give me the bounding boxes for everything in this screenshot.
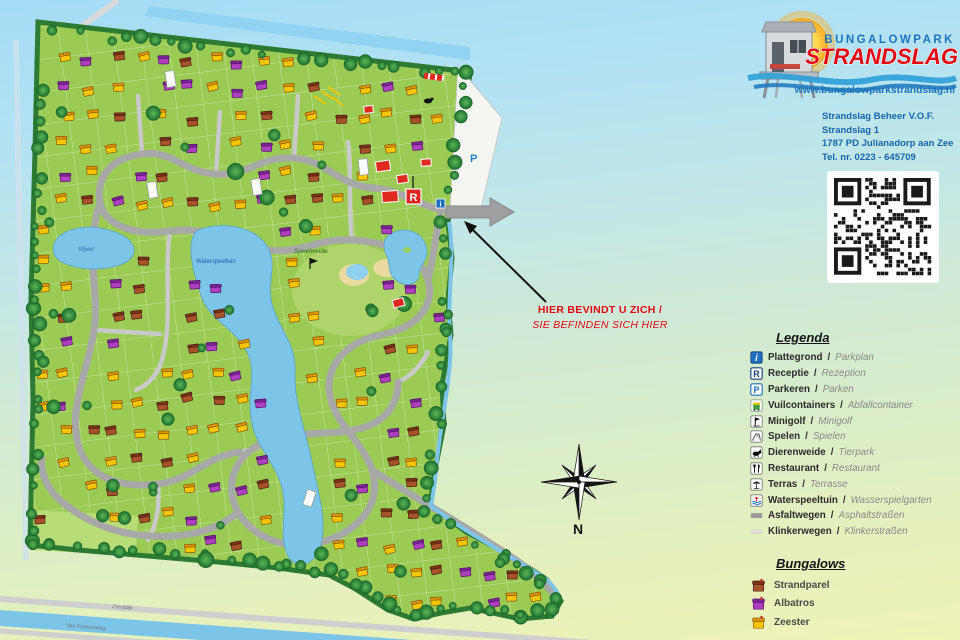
left-canal xyxy=(16,40,26,560)
bungalow-icon xyxy=(261,143,272,151)
svg-text:R: R xyxy=(410,192,418,204)
tree-icon xyxy=(432,514,442,524)
bungalow-icon xyxy=(56,136,67,144)
tree-icon xyxy=(500,605,509,614)
tree-icon xyxy=(297,52,310,65)
bungalow-icon xyxy=(232,89,243,97)
tree-icon xyxy=(133,29,148,44)
bungalow-icon xyxy=(213,309,225,319)
tree-icon xyxy=(198,551,214,567)
tree-icon xyxy=(178,39,193,54)
bungalow-icon xyxy=(111,401,122,409)
tree-icon xyxy=(344,58,357,71)
bungalow-icon xyxy=(460,567,472,576)
bungalow-icon xyxy=(87,109,99,118)
bungalow-icon xyxy=(336,399,347,408)
legend-item-parking: P Parkeren / Parken xyxy=(750,382,960,398)
tree-icon xyxy=(324,562,338,576)
tree-icon xyxy=(225,305,234,314)
tree-icon xyxy=(31,252,38,259)
you-are-here-nl: HIER BEVINDT U ZICH / xyxy=(500,304,700,316)
tree-icon xyxy=(444,186,452,194)
bungalow-icon xyxy=(58,81,69,89)
bungalow-icon xyxy=(430,565,443,575)
bungalow-icon xyxy=(306,373,318,383)
bungalow-icon xyxy=(60,173,71,181)
tree-icon xyxy=(435,344,447,356)
legend-items: i Plattegrond / Parkplan R Receptie / Re… xyxy=(750,350,960,540)
bungalow-albatros-icon xyxy=(750,595,767,612)
tree-icon xyxy=(519,566,533,580)
tree-icon xyxy=(106,479,119,492)
you-are-here-de: SIE BEFINDEN SICH HIER xyxy=(500,319,700,331)
tree-icon xyxy=(448,155,463,170)
tree-icon xyxy=(38,206,47,215)
tree-icon xyxy=(295,560,306,571)
tree-icon xyxy=(393,606,401,614)
bungalow-icon xyxy=(529,592,541,602)
tree-icon xyxy=(33,449,44,460)
tree-icon xyxy=(121,32,131,42)
legend: Legenda i Plattegrond / Parkplan R Recep… xyxy=(750,330,960,540)
bungalow-icon xyxy=(38,255,49,263)
tree-icon xyxy=(299,219,313,233)
bungalow-icon xyxy=(80,57,92,66)
tree-icon xyxy=(534,579,544,589)
bungalow-icon xyxy=(356,537,368,547)
bungalow-icon xyxy=(236,393,249,403)
bungalow-icon xyxy=(410,115,422,124)
legend-item-info: i Plattegrond / Parkplan xyxy=(750,350,960,366)
tree-icon xyxy=(174,378,187,391)
tree-icon xyxy=(29,419,38,428)
you-are-here-text: HIER BEVINDT U ZICH / SIE BEFINDEN SICH … xyxy=(500,304,700,331)
bungalow-icon xyxy=(131,453,143,463)
bungalow-icon xyxy=(430,597,442,606)
tree-icon xyxy=(30,482,37,489)
bungalow-type-albatros: Albatros xyxy=(750,595,950,614)
bungalow-icon xyxy=(136,200,149,210)
bungalow-icon xyxy=(387,456,400,466)
bungalow-icon xyxy=(107,339,119,349)
terrace-icon xyxy=(750,478,763,491)
bungalow-icon xyxy=(231,61,242,69)
bungalow-icon xyxy=(331,513,343,522)
tree-icon xyxy=(268,129,280,141)
bungalow-icon xyxy=(113,311,126,321)
tree-icon xyxy=(429,406,444,421)
bungalow-types: Bungalows Strandparel Albatros Zeester xyxy=(750,556,950,632)
tree-icon xyxy=(243,553,257,567)
tree-icon xyxy=(345,489,358,502)
tree-icon xyxy=(181,143,190,152)
tree-icon xyxy=(32,265,40,273)
tree-icon xyxy=(26,463,39,476)
bungalow-icon xyxy=(160,137,172,146)
tree-icon xyxy=(29,526,39,536)
tree-icon xyxy=(226,49,234,57)
pond-island xyxy=(403,247,411,253)
bungalow-icon xyxy=(383,280,395,289)
bungalow-icon xyxy=(158,56,169,64)
tree-icon xyxy=(34,395,42,403)
tree-icon xyxy=(98,542,109,553)
bungalow-icon xyxy=(308,173,320,182)
legend-item-asphalt: Asfaltwegen / Asphaltstraßen xyxy=(750,508,960,524)
tree-icon xyxy=(28,279,42,293)
bungalow-icon xyxy=(288,313,300,322)
tree-icon xyxy=(459,82,466,89)
tree-icon xyxy=(439,234,447,242)
tree-icon xyxy=(367,305,379,317)
tree-icon xyxy=(309,567,320,578)
tree-icon xyxy=(279,208,288,217)
tree-icon xyxy=(77,27,85,35)
bungalow-icon xyxy=(255,80,267,90)
bungalow-icon xyxy=(181,80,193,89)
tree-icon xyxy=(394,565,406,577)
tree-icon xyxy=(30,296,39,305)
tree-icon xyxy=(35,116,45,126)
bungalow-icon xyxy=(110,279,122,288)
contact-block: Strandslag Beheer V.O.F.Strandslag 11787… xyxy=(822,110,960,164)
tree-icon xyxy=(437,605,445,613)
tree-icon xyxy=(31,238,39,246)
bungalow-icon xyxy=(214,396,225,404)
tree-icon xyxy=(128,546,137,555)
bungalow-icon xyxy=(60,281,72,290)
tree-icon xyxy=(517,611,525,619)
bungalow-icon xyxy=(379,373,392,383)
bungalow-icon xyxy=(55,193,67,203)
tree-icon xyxy=(437,419,447,429)
tree-icon xyxy=(37,84,50,97)
bungalow-icon xyxy=(61,425,72,433)
tree-icon xyxy=(62,308,76,322)
tree-icon xyxy=(435,67,443,75)
bungalow-icon xyxy=(130,310,142,319)
bungalow-icon xyxy=(179,57,192,67)
tree-icon xyxy=(47,25,57,35)
tree-icon xyxy=(314,53,328,67)
bungalow-icon xyxy=(411,141,423,150)
parking-letter: P xyxy=(470,153,477,165)
bungalow-icon xyxy=(184,544,195,553)
tree-icon xyxy=(367,386,377,396)
you-are-here-arrow xyxy=(464,221,546,302)
bungalow-icon xyxy=(359,84,371,94)
tree-icon xyxy=(545,602,559,616)
bungalow-icon xyxy=(507,571,518,579)
tree-icon xyxy=(96,509,109,522)
bungalow-icon xyxy=(282,57,294,67)
tree-icon xyxy=(196,42,205,51)
tree-icon xyxy=(446,138,460,152)
tree-icon xyxy=(424,461,438,475)
tree-icon xyxy=(45,218,55,228)
bungalow-icon xyxy=(89,426,100,434)
legend-item-waste: Vuilcontainers / Abfallcontainer xyxy=(750,397,960,413)
tree-icon xyxy=(258,51,265,58)
tree-icon xyxy=(32,316,47,331)
bungalow-icon xyxy=(210,284,221,292)
qr-code xyxy=(827,171,939,283)
bungalow-icon xyxy=(187,197,199,206)
bungalow-icon xyxy=(85,480,98,490)
bungalow-type-zeester: Zeester xyxy=(750,613,950,632)
bungalow-icon xyxy=(185,312,198,322)
bungalow-icon xyxy=(313,142,324,150)
bungalow-icon xyxy=(105,425,118,435)
bungalow-icon xyxy=(410,398,422,408)
tree-icon xyxy=(495,558,505,568)
bungalow-zeester-icon xyxy=(750,614,767,631)
bungalow-icon xyxy=(135,172,147,181)
tree-icon xyxy=(443,310,452,319)
bungalow-icon xyxy=(286,258,297,267)
legend-item-animals: Dierenweide / Tierpark xyxy=(750,445,960,461)
bungalow-icon xyxy=(105,456,118,466)
contact-line: Tel. nr. 0223 - 645709 xyxy=(822,151,960,165)
tree-icon xyxy=(450,171,459,180)
contact-line: Strandslag Beheer V.O.F. xyxy=(822,110,960,124)
tree-icon xyxy=(438,297,446,305)
bungalow-icon xyxy=(80,144,92,154)
bungalow-icon xyxy=(311,193,323,202)
bungalow-icon xyxy=(381,226,392,234)
tree-icon xyxy=(227,163,244,180)
minigolf-icon xyxy=(750,415,763,428)
bungalow-icon xyxy=(285,195,297,204)
compass-north-label: N xyxy=(573,521,583,537)
tree-icon xyxy=(442,327,452,337)
bungalow-icon xyxy=(385,144,397,154)
bungalow-icon xyxy=(114,113,125,121)
tree-icon xyxy=(241,45,251,55)
bungalow-icon xyxy=(138,513,151,523)
bungalow-icon xyxy=(213,368,224,376)
tree-icon xyxy=(216,521,224,529)
tree-icon xyxy=(436,381,447,392)
bungalow-icon xyxy=(484,571,496,581)
bungalow-icon xyxy=(333,540,345,549)
tree-icon xyxy=(451,67,459,75)
tree-icon xyxy=(513,561,521,569)
tree-icon xyxy=(256,556,270,570)
bungalow-icon xyxy=(59,52,71,62)
bungalow-icon xyxy=(430,540,442,550)
bungalow-icon xyxy=(186,425,199,435)
bungalow-icon xyxy=(183,484,195,494)
tree-icon xyxy=(350,579,362,591)
tree-icon xyxy=(388,61,399,72)
bungalow-icon xyxy=(334,459,345,467)
website-link[interactable]: www.bungalowparkstrandslag.nl xyxy=(794,85,956,96)
tree-icon xyxy=(108,37,117,46)
bungalow-icon xyxy=(230,541,243,551)
tree-icon xyxy=(459,65,474,80)
bungalow-icon xyxy=(361,195,373,205)
tree-icon xyxy=(437,361,446,370)
label-speelweide: Speelweide xyxy=(294,248,328,255)
reception-marker: R xyxy=(406,189,421,204)
bungalow-strandparel-icon xyxy=(750,577,767,594)
bungalow-icon xyxy=(211,53,222,62)
tree-icon xyxy=(162,413,175,426)
tree-icon xyxy=(198,344,206,352)
waterplay-icon xyxy=(750,494,763,507)
label-waterspeeltuin: Waterspeeltuin xyxy=(196,259,236,265)
bungalow-icon xyxy=(156,173,168,182)
tree-icon xyxy=(531,603,545,617)
bungalow-icon xyxy=(208,482,221,492)
bungalow-icon xyxy=(279,227,291,237)
animals-icon xyxy=(750,446,763,459)
contact-line: Strandslag 1 xyxy=(822,124,960,138)
tree-icon xyxy=(274,561,284,571)
tree-icon xyxy=(471,541,478,548)
bungalow-icon xyxy=(356,567,369,577)
bungalow-icon xyxy=(381,509,392,517)
restaurant-icon xyxy=(750,462,763,475)
parking-area: P xyxy=(450,66,502,213)
bungalow-icon xyxy=(358,114,371,124)
info-icon: i xyxy=(750,351,763,364)
legend-item-reception: R Receptie / Rezeption xyxy=(750,366,960,382)
bungalow-icon xyxy=(158,431,169,439)
bungalows-title: Bungalows xyxy=(776,556,950,571)
bungalow-icon xyxy=(359,145,371,154)
tree-icon xyxy=(397,497,410,510)
paved-icon xyxy=(750,525,763,538)
tree-icon xyxy=(118,511,131,524)
tree-icon xyxy=(56,107,67,118)
legend-item-play: Spelen / Spielen xyxy=(750,429,960,445)
bungalow-icon xyxy=(406,478,418,487)
bungalow-icon xyxy=(235,200,247,209)
tree-icon xyxy=(150,34,162,46)
tree-icon xyxy=(471,601,484,614)
tree-icon xyxy=(49,309,58,318)
tree-icon xyxy=(318,161,326,169)
bungalow-icon xyxy=(357,397,368,405)
bungalow-icon xyxy=(86,166,97,174)
play-icon xyxy=(750,430,763,443)
tree-icon xyxy=(26,509,37,520)
bungalow-icon xyxy=(313,336,325,345)
tree-icon xyxy=(28,334,41,347)
tree-icon xyxy=(378,61,386,69)
bungalow-icon xyxy=(204,535,216,545)
bungalow-type-strandparel: Strandparel xyxy=(750,576,950,595)
legend-item-waterplay: Waterspeeltuin / Wasserspielgarten xyxy=(750,492,960,508)
tree-icon xyxy=(454,110,467,123)
tree-icon xyxy=(146,106,161,121)
tree-icon xyxy=(228,556,236,564)
tree-icon xyxy=(338,569,348,579)
bungalow-icon xyxy=(356,484,368,493)
bungalow-icon xyxy=(256,455,269,465)
bungalow-icon xyxy=(336,115,347,123)
reception-icon: R xyxy=(750,367,763,380)
bungalow-icon xyxy=(279,139,292,149)
tree-icon xyxy=(485,606,496,617)
svg-text:i: i xyxy=(755,354,758,365)
bungalow-icon xyxy=(261,111,273,120)
tree-icon xyxy=(37,356,49,368)
bungalow-icon xyxy=(388,428,400,438)
compass-rose xyxy=(541,444,617,520)
bungalow-icon xyxy=(133,284,145,294)
bungalow-icon xyxy=(107,371,119,381)
bungalow-icon xyxy=(61,336,74,346)
info-marker: i xyxy=(436,199,445,209)
bungalow-icon xyxy=(407,426,419,436)
tree-icon xyxy=(35,99,46,110)
svg-text:P: P xyxy=(754,385,760,395)
bungalow-icon xyxy=(405,458,417,467)
bungalow-icon xyxy=(255,399,267,408)
tree-icon xyxy=(73,542,82,551)
bungalow-icon xyxy=(382,82,395,92)
tree-icon xyxy=(35,131,48,144)
bungalow-icon xyxy=(134,429,146,438)
legend-item-terrace: Terras / Terrasse xyxy=(750,476,960,492)
tree-icon xyxy=(36,172,48,184)
bungalow-icon xyxy=(206,342,218,351)
tree-icon xyxy=(31,223,38,230)
bungalow-icon xyxy=(161,458,174,468)
bungalow-icon xyxy=(380,108,392,118)
tree-icon xyxy=(420,476,433,489)
bungalow-icon xyxy=(157,401,169,410)
tree-icon xyxy=(449,602,456,609)
bungalow-icon xyxy=(283,83,295,92)
tree-icon xyxy=(410,609,422,621)
tree-icon xyxy=(47,400,61,414)
svg-text:R: R xyxy=(753,369,760,379)
bungalow-icon xyxy=(354,367,366,377)
bungalow-icon xyxy=(235,111,246,119)
logo: BUNGALOWPARK STRANDSLAG www.bungalowpark… xyxy=(740,2,960,102)
bungalow-icon xyxy=(411,568,423,577)
bungalow-type-items: Strandparel Albatros Zeester xyxy=(750,576,950,632)
park-map-page: Zanddijk Van Foreestweg P xyxy=(0,0,960,640)
parking-icon: P xyxy=(750,383,763,396)
bungalow-icon xyxy=(456,537,468,547)
tree-icon xyxy=(43,539,54,550)
tree-icon xyxy=(423,494,431,502)
tree-icon xyxy=(33,189,42,198)
tree-icon xyxy=(418,505,430,517)
bungalow-icon xyxy=(187,117,199,126)
bungalow-icon xyxy=(161,369,173,378)
legend-item-minigolf: Minigolf / Minigolf xyxy=(750,413,960,429)
svg-text:i: i xyxy=(439,200,441,209)
tree-icon xyxy=(445,518,456,529)
bungalow-icon xyxy=(189,280,201,289)
brand-main-text: STRANDSLAG xyxy=(805,44,958,69)
bungalow-icon xyxy=(308,82,320,92)
bungalow-icon xyxy=(308,311,320,320)
bungalow-icon xyxy=(332,194,344,203)
tree-icon xyxy=(148,482,157,491)
tree-icon xyxy=(27,539,38,550)
bungalow-icon xyxy=(408,510,420,519)
asphalt-icon xyxy=(750,509,763,522)
legend-item-restaurant: Restaurant / Restaurant xyxy=(750,461,960,477)
tree-icon xyxy=(372,592,383,603)
